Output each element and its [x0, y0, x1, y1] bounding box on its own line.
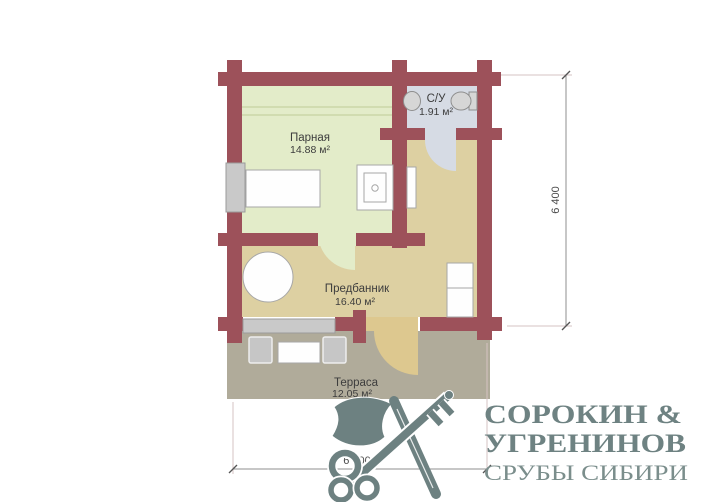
- parnaya-floor: [242, 86, 392, 233]
- wall-bottom-right: [420, 317, 502, 331]
- axe-head: [332, 397, 392, 446]
- wall-mid-right: [356, 233, 425, 246]
- stove-firebox: [407, 167, 416, 208]
- sink-icon: [404, 92, 421, 111]
- wall-top: [218, 72, 501, 86]
- wall-log-end-bottom: [353, 310, 366, 343]
- wall-bottom-left: [218, 317, 243, 331]
- parnaya-area: 14.88 м²: [290, 144, 330, 156]
- predbannik-area: 16.40 м²: [335, 296, 375, 308]
- dimension-right-value: 6 400: [550, 186, 562, 214]
- wall-mid-left: [218, 233, 318, 246]
- logo-line-1: СОРОКИН &: [484, 400, 682, 429]
- stove-burner: [372, 185, 378, 191]
- parnaya-label: Парная: [290, 132, 330, 144]
- floor-plan-page: Парная 14.88 м² С/У 1.91 м² Предбанник 1…: [0, 0, 712, 502]
- wall-bottom-mid: [335, 317, 353, 331]
- key-tip: [445, 391, 454, 400]
- terrace-table: [278, 342, 320, 363]
- axe-and-key-icon: [331, 391, 454, 501]
- logo: СОРОКИН & УГРЕНИНОВ СРУБЫ СИБИРИ: [331, 391, 688, 501]
- terrace-chair-right: [323, 337, 346, 363]
- key-tooth-2: [441, 402, 452, 414]
- terrace-chair-left: [249, 337, 272, 363]
- predbannik-label: Предбанник: [325, 283, 390, 295]
- key-tooth-1: [430, 412, 441, 424]
- window-terrace: [243, 319, 335, 333]
- dimension-right: 6 400: [501, 71, 572, 330]
- wall-su-bottom-left: [380, 128, 425, 140]
- cabinet: [447, 263, 473, 317]
- wall-su-bottom-right: [456, 128, 502, 140]
- su-label: С/У: [427, 93, 447, 105]
- su-area: 1.91 м²: [419, 106, 454, 118]
- window-parnaya-left: [226, 163, 245, 212]
- logo-line-3: СРУБЫ СИБИРИ: [484, 460, 688, 485]
- round-table: [243, 252, 293, 302]
- sauna-bench: [246, 170, 320, 207]
- door-terrace-gap: [366, 317, 418, 331]
- door-su-gap: [425, 128, 456, 140]
- wall-right: [477, 60, 492, 340]
- logo-line-2: УГРЕНИНОВ: [484, 429, 686, 458]
- wall-mid-vertical: [392, 60, 407, 248]
- toilet-bowl: [451, 92, 471, 110]
- floor-plan-canvas: Парная 14.88 м² С/У 1.91 м² Предбанник 1…: [0, 0, 712, 502]
